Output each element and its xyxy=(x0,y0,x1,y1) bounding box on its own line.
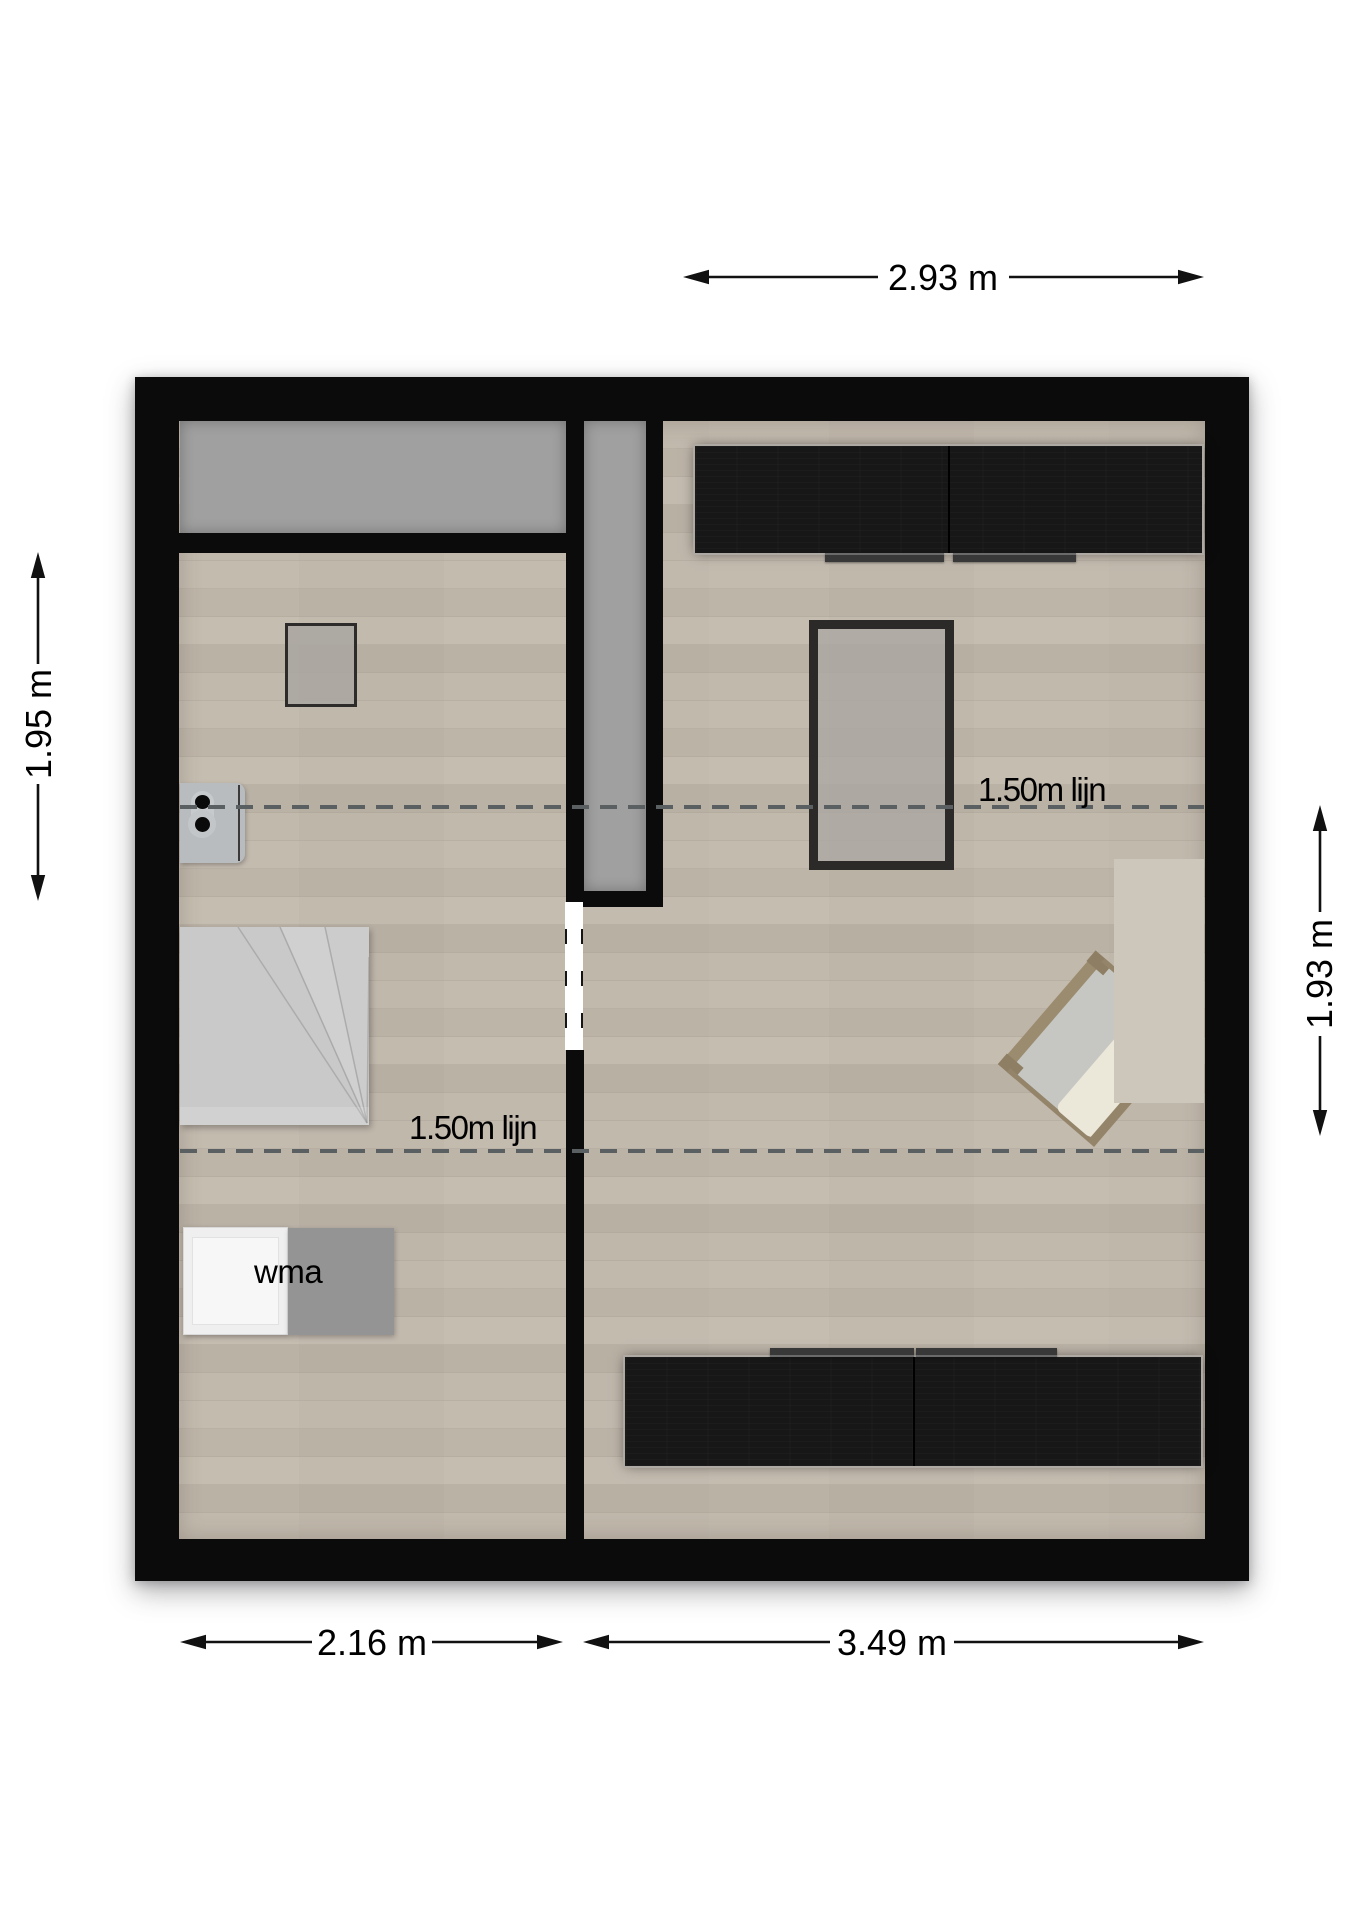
svg-text:1.95 m: 1.95 m xyxy=(18,669,59,779)
svg-text:3.49 m: 3.49 m xyxy=(837,1622,947,1663)
svg-text:1.93 m: 1.93 m xyxy=(1299,919,1340,1029)
svg-text:2.93 m: 2.93 m xyxy=(888,257,998,298)
svg-text:2.16 m: 2.16 m xyxy=(317,1622,427,1663)
